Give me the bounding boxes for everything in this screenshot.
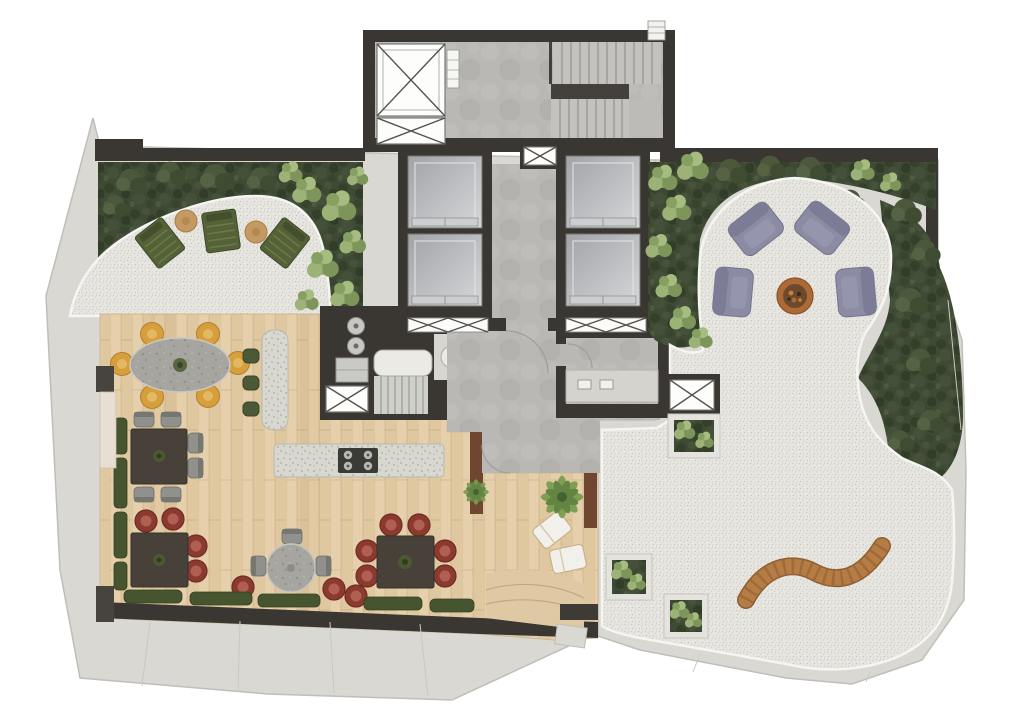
- planter-box: [664, 594, 708, 638]
- elevator-threshold: [408, 318, 488, 332]
- bbq-room: [552, 326, 670, 418]
- sink-fixture: [600, 380, 613, 389]
- planter-box: [606, 554, 652, 600]
- shaft-small: [377, 118, 445, 144]
- planter-box: [668, 414, 720, 458]
- nook-bench: [560, 604, 598, 620]
- core-door: [447, 50, 459, 88]
- fire-pit: [777, 278, 813, 314]
- circulation-core: [363, 21, 675, 152]
- northwest-garden: [70, 161, 368, 316]
- side-table: [175, 210, 197, 232]
- terrace-step: [555, 624, 587, 648]
- kitchen-island: [274, 444, 444, 477]
- bathtub: [374, 350, 432, 376]
- wood-planter-wall: [584, 466, 597, 528]
- side-cabinet: [100, 392, 116, 468]
- elevator-lobby: [398, 144, 658, 332]
- bar-counter: [262, 330, 288, 430]
- shaft-large: [377, 44, 445, 116]
- wall-planter: [96, 366, 114, 392]
- lobby-shaft: [524, 147, 556, 165]
- sink-fixture: [578, 380, 591, 389]
- stair-landing-rail: [551, 84, 629, 99]
- roof-vent: [648, 21, 665, 40]
- floor-plan-canvas: [0, 0, 1024, 724]
- exterior-shaft: [664, 374, 720, 416]
- cooktop: [338, 448, 378, 473]
- side-table: [245, 221, 267, 243]
- elevator-threshold: [566, 318, 646, 332]
- service-stair: [374, 376, 428, 414]
- corner-planter: [96, 586, 114, 622]
- lobby-floor: [490, 164, 556, 318]
- service-shaft: [326, 386, 368, 412]
